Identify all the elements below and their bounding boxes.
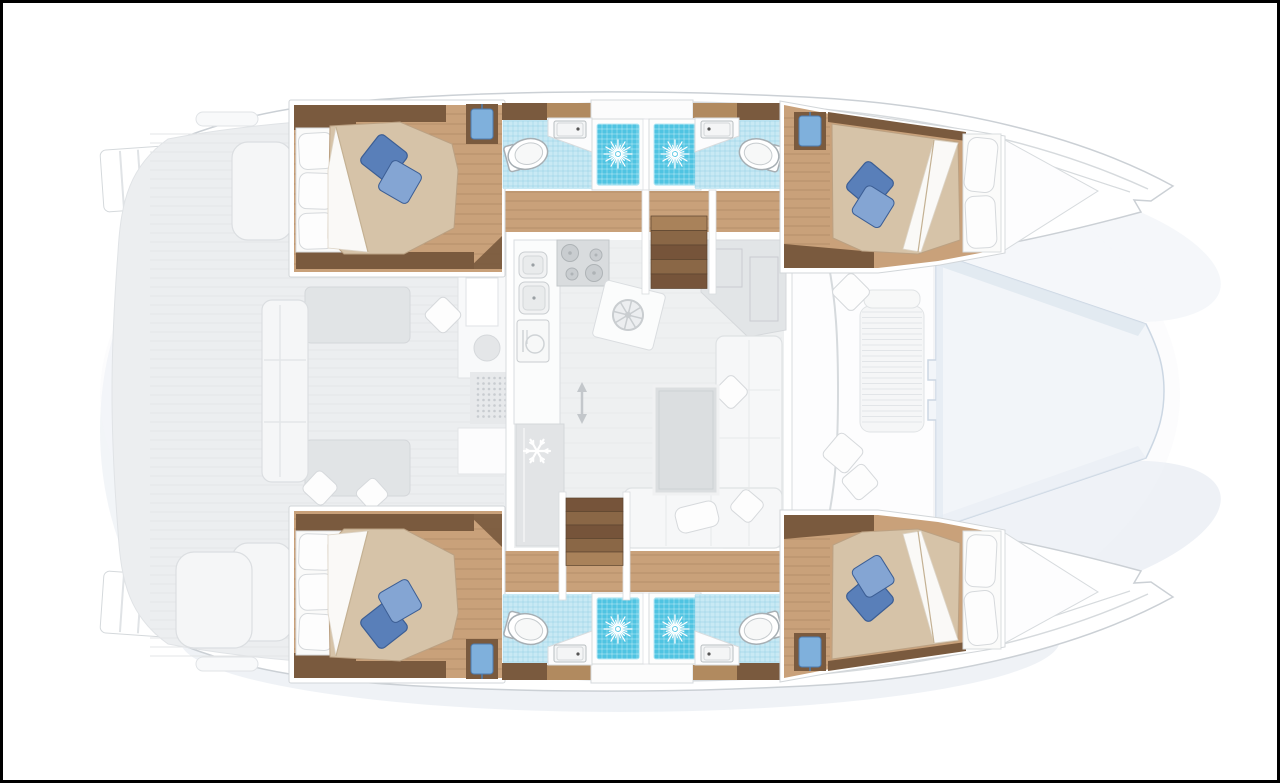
- hob: [557, 240, 609, 286]
- towel-niche: [794, 112, 826, 150]
- lounge-pad: [860, 306, 924, 432]
- towel: [799, 116, 821, 146]
- cockpit-seat: [305, 287, 410, 343]
- shower-aft: [592, 119, 644, 190]
- towel: [471, 109, 493, 139]
- vanity-sink: [554, 121, 586, 138]
- catamaran-floor-plan: [0, 0, 1280, 783]
- saloon-table: [654, 386, 718, 494]
- deck-locker: [196, 112, 258, 126]
- cabin-aft: [289, 100, 505, 277]
- shower-forward: [649, 119, 701, 190]
- floor-plan-page: [0, 0, 1280, 783]
- cockpit-hatch: [176, 552, 252, 648]
- galley-sink: [519, 252, 549, 314]
- bed-aft: [296, 122, 458, 254]
- bathrooms: [502, 100, 789, 192]
- bathroom-forward: [695, 118, 784, 189]
- forward-cockpit: [786, 256, 934, 526]
- bed-forward: [832, 124, 1001, 254]
- cockpit-hatch: [232, 142, 292, 240]
- refrigerator: [516, 424, 564, 546]
- aft-bench: [262, 300, 308, 482]
- lounge-headrest: [864, 290, 920, 308]
- vanity-sink: [701, 121, 733, 138]
- bathroom-aft: [503, 118, 592, 189]
- wet-bar: [458, 272, 506, 378]
- towel-niche: [466, 104, 498, 144]
- dishwasher: [517, 320, 549, 362]
